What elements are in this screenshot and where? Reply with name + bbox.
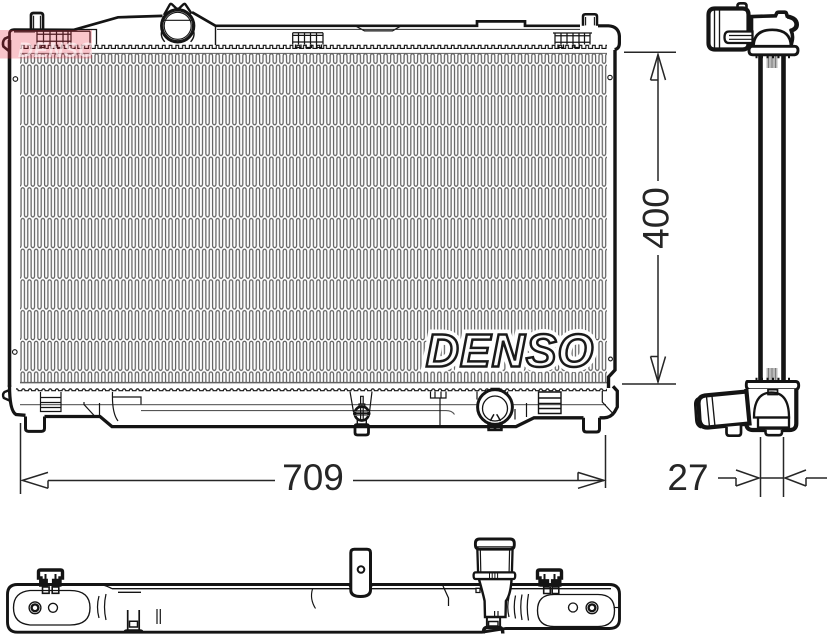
svg-text:DENSO: DENSO: [426, 325, 595, 377]
svg-text:400: 400: [636, 187, 677, 249]
svg-text:709: 709: [282, 457, 344, 498]
svg-text:27: 27: [667, 457, 708, 498]
